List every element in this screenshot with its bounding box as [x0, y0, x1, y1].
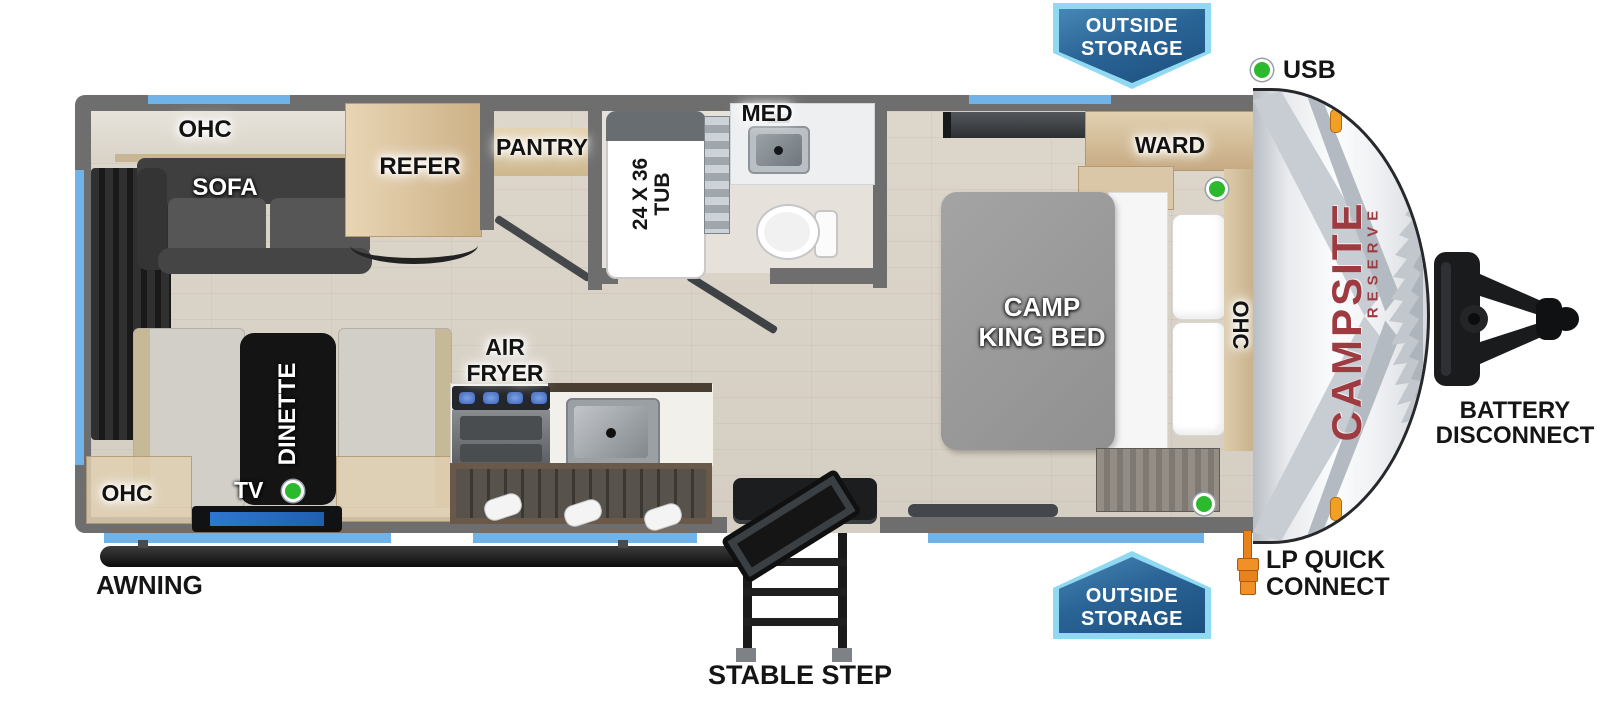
label-refer: REFER	[360, 153, 480, 181]
wall-bath-right	[873, 98, 887, 288]
badge-top-line1: OUTSIDE	[1086, 15, 1178, 37]
marker-light-top	[1330, 109, 1342, 133]
callout-battery-line1: BATTERY	[1460, 397, 1571, 424]
callout-lp-line1: LP QUICK	[1266, 546, 1385, 574]
wall-refer-pantry	[480, 98, 494, 230]
rv-floorplan-diagram: OHC SOFA REFER PANTRY MED 24 X 36 TUB WA…	[0, 0, 1600, 713]
step-rung-3	[743, 618, 847, 626]
kitchen-sink-drain	[606, 428, 616, 438]
badge-bottom-line1: OUTSIDE	[1086, 585, 1178, 607]
label-med: MED	[732, 100, 802, 127]
bed-pillow-bottom	[1172, 322, 1226, 436]
shower-door	[704, 116, 730, 234]
wall-pantry-bath	[588, 98, 602, 290]
stove-burner-4	[531, 392, 547, 404]
refrigerator-door-arc	[350, 226, 478, 264]
callout-stable-step: STABLE STEP	[700, 660, 900, 691]
label-bed-line2: KING BED	[978, 322, 1105, 352]
callout-battery-disconnect: BATTERY DISCONNECT	[1430, 398, 1600, 448]
ohc-overlay-right	[336, 456, 454, 522]
stove-drawer-panel	[460, 444, 542, 462]
label-pantry: PANTRY	[492, 134, 592, 161]
label-tv: TV	[234, 477, 263, 504]
kitchen-backsplash	[548, 383, 712, 392]
window-rear-left	[75, 170, 84, 465]
bed-pillow-top	[1172, 214, 1226, 320]
label-air-line1: AIR	[485, 334, 525, 360]
label-tub: 24 X 36 TUB	[630, 134, 674, 254]
cap-treeline-graphic	[1375, 201, 1423, 441]
badge-bottom-line2: STORAGE	[1081, 608, 1183, 630]
sofa-front-bolster	[158, 248, 372, 274]
label-ohc-top: OHC	[160, 116, 250, 144]
awning-rail-right	[928, 533, 1204, 543]
badge-text: OUTSIDE STORAGE	[1053, 3, 1211, 89]
awning-rail-center	[473, 533, 697, 543]
front-cap: CAMPSITE RESERVE	[1253, 88, 1430, 544]
awning-bracket-left	[138, 540, 148, 548]
bedroom-usb-dot-bottom	[1193, 493, 1215, 515]
hitch-assembly	[1424, 238, 1594, 408]
stove-burner-3	[507, 392, 523, 404]
label-ohc-dinette: OHC	[82, 480, 172, 507]
label-air-fryer: AIR FRYER	[462, 334, 548, 386]
dinette-usb-dot	[282, 480, 304, 502]
label-bed-line1: CAMP	[1004, 292, 1081, 322]
usb-indicator-dot	[1251, 59, 1273, 81]
label-sofa: SOFA	[170, 174, 280, 202]
lp-connector-3	[1240, 581, 1256, 595]
toilet-seat	[764, 212, 810, 252]
outside-storage-badge-bottom: OUTSIDE STORAGE	[1053, 551, 1211, 639]
window-top-bedroom	[969, 95, 1111, 104]
callout-lp-quick-connect: LP QUICK CONNECT	[1266, 547, 1390, 601]
label-ohc-bed: OHC	[1227, 295, 1253, 355]
label-ward: WARD	[1120, 132, 1220, 159]
window-top-left	[148, 95, 290, 104]
badge-top-line2: STORAGE	[1081, 38, 1183, 60]
awning-bracket-right	[618, 540, 628, 548]
outside-storage-badge-top: OUTSIDE STORAGE	[1053, 3, 1211, 89]
bedroom-overhead-shelf	[943, 112, 1105, 138]
stove-burner-2	[483, 392, 499, 404]
step-rung-2	[743, 588, 847, 596]
bedroom-usb-dot-top	[1206, 178, 1228, 200]
label-tub-line1: 24 X 36	[629, 158, 652, 230]
assist-rail	[908, 504, 1058, 517]
brand-series: RESERVE	[1365, 177, 1382, 347]
callout-lp-line2: CONNECT	[1266, 573, 1390, 601]
callout-battery-line2: DISCONNECT	[1436, 422, 1595, 449]
awning-roll	[100, 546, 750, 567]
stove-burner-1	[459, 392, 475, 404]
tv-screen	[210, 512, 324, 526]
stove-oven-panel	[460, 416, 542, 440]
label-camp-king-bed: CAMP KING BED	[952, 292, 1132, 352]
wall-bath-bottom-right	[770, 268, 887, 284]
badge-text: OUTSIDE STORAGE	[1053, 551, 1211, 639]
label-air-line2: FRYER	[466, 360, 543, 386]
label-dinette: DINETTE	[274, 330, 302, 498]
label-tub-line2: TUB	[651, 172, 674, 215]
callout-usb: USB	[1283, 56, 1336, 85]
bath-sink-drain	[774, 146, 783, 155]
marker-light-bottom	[1330, 497, 1342, 521]
callout-awning: AWNING	[96, 570, 203, 601]
